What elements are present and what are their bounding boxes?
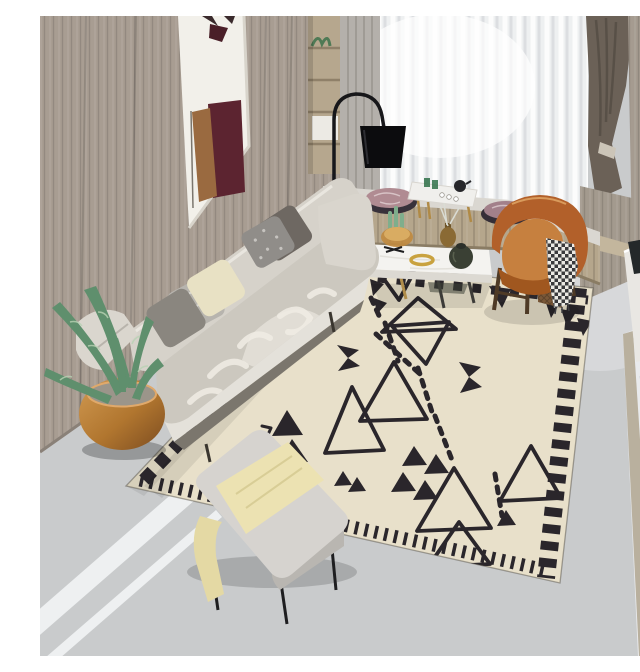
sofa-right-arm <box>318 194 376 270</box>
cushion-1-top <box>366 188 414 208</box>
shelf-shadow <box>308 16 313 174</box>
gold-bowl-inner <box>384 227 410 241</box>
green-cup-2 <box>432 180 438 189</box>
olive-vase-neck <box>456 243 466 249</box>
table-lower-shelf <box>428 282 468 294</box>
green-cup-1 <box>424 178 430 187</box>
scene-canvas <box>40 16 640 656</box>
wall-shelf-unit <box>308 16 342 174</box>
living-room-photo: Modern living room photo: beige fabric s… <box>40 16 640 656</box>
sprig-vase <box>440 227 456 247</box>
teapot <box>454 180 466 192</box>
